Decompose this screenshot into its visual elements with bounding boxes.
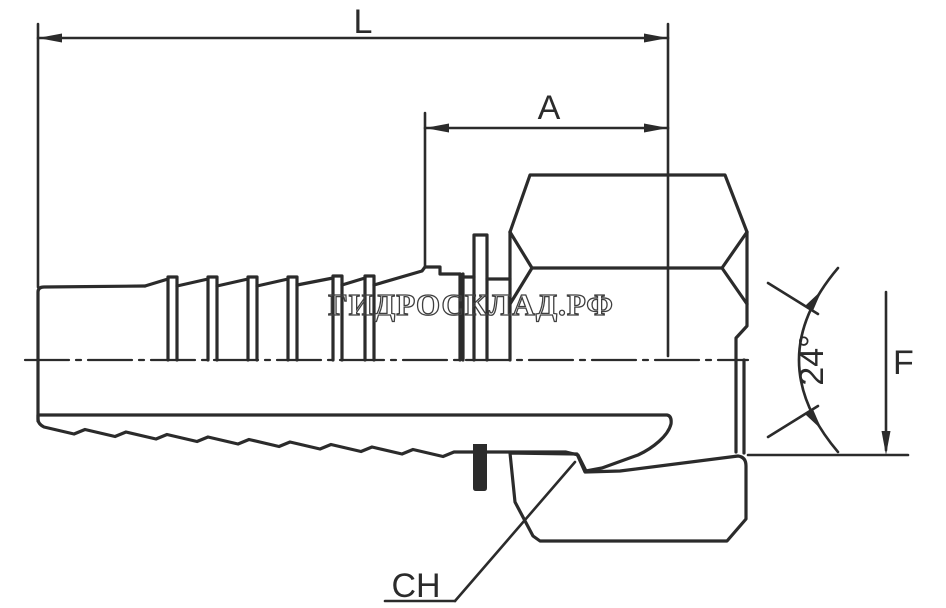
wrench-size-label: CH xyxy=(391,567,440,605)
dimension-cutoff-length: A xyxy=(425,89,668,266)
hose-barb-spigot xyxy=(38,235,510,421)
hex-nut xyxy=(510,175,747,360)
cone-seat-edges xyxy=(736,360,744,453)
cone-angle-dimension: 24° xyxy=(768,268,838,452)
nipple-section-strip xyxy=(38,415,671,471)
watermark-text: ГИДРОСКЛАД.РФ xyxy=(328,287,614,322)
collar-section-bar xyxy=(473,444,487,491)
cutoff-label: A xyxy=(538,89,561,127)
length-label: L xyxy=(354,3,373,41)
drawing-canvas: L A 24° F CH ГИДРОСКЛАД.РФ xyxy=(0,0,946,608)
technical-drawing-hydraulic-fitting: L A 24° F CH ГИДРОСКЛАД.РФ xyxy=(0,0,946,608)
cone-diameter-label: F xyxy=(893,344,914,382)
watermark: ГИДРОСКЛАД.РФ xyxy=(328,287,614,322)
cone-angle-label: 24° xyxy=(793,334,831,385)
